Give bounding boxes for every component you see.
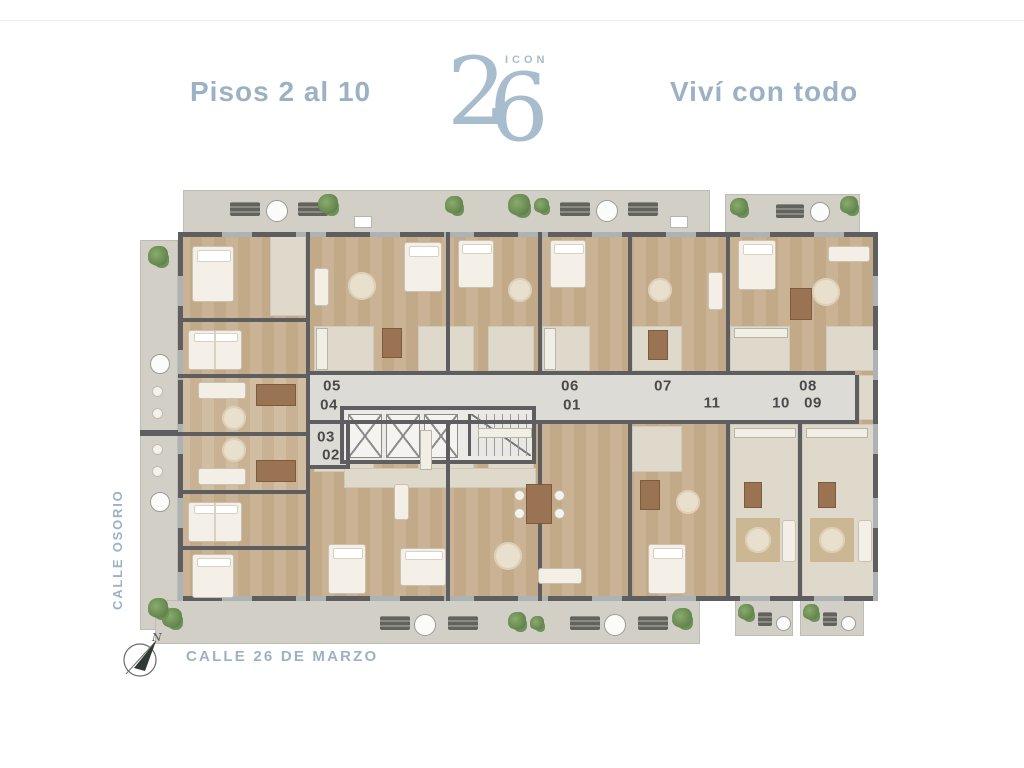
unit-label-01: 01 bbox=[563, 397, 581, 414]
page-top-divider bbox=[0, 20, 1024, 21]
brand-logo: 2 6 ICON bbox=[447, 46, 567, 148]
north-compass: N bbox=[118, 630, 166, 682]
floors-label: Pisos 2 al 10 bbox=[190, 76, 371, 108]
unit-label-09: 09 bbox=[804, 395, 822, 412]
logo-digit-6: 6 bbox=[489, 62, 549, 156]
compass-needle bbox=[134, 641, 156, 671]
tagline: Viví con todo bbox=[670, 76, 858, 108]
unit-label-10: 10 bbox=[772, 395, 790, 412]
unit-label-03: 03 bbox=[317, 429, 335, 446]
compass-north-label: N bbox=[151, 631, 162, 644]
unit-label-08: 08 bbox=[799, 378, 817, 395]
page-root: { "header": { "floors_label": "Pisos 2 a… bbox=[0, 0, 1024, 768]
floor-plan: 0504030206010708111009 bbox=[140, 186, 936, 662]
logo-wordmark: ICON bbox=[505, 54, 549, 66]
street-label-26-de-marzo: CALLE 26 DE MARZO bbox=[186, 648, 378, 665]
unit-label-07: 07 bbox=[654, 378, 672, 395]
street-label-osorio: CALLE OSORIO bbox=[110, 486, 125, 610]
unit-labels-layer: 0504030206010708111009 bbox=[140, 186, 936, 662]
unit-label-05: 05 bbox=[323, 378, 341, 395]
unit-label-06: 06 bbox=[561, 378, 579, 395]
unit-label-02: 02 bbox=[322, 447, 340, 464]
unit-label-04: 04 bbox=[320, 397, 338, 414]
unit-label-11: 11 bbox=[704, 395, 721, 412]
